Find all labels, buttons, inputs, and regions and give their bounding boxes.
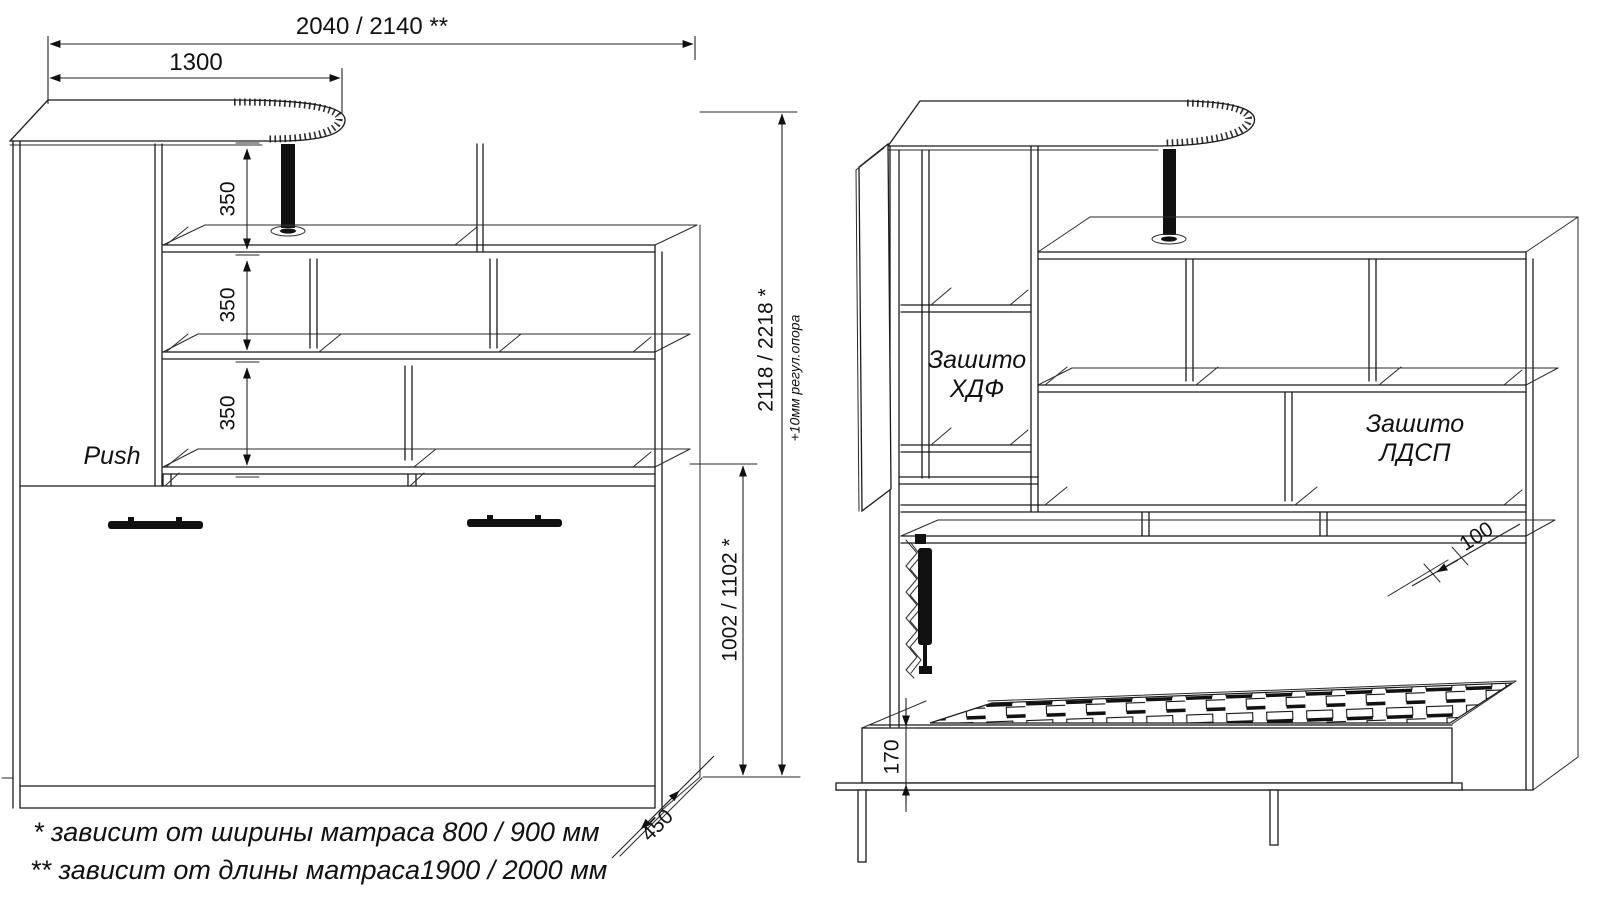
label-back-hdf: Зашито ХДФ [928,346,1026,403]
note-adjustable-support: +10мм регул.опора [787,314,803,441]
shelf-dividers [163,227,651,486]
dim-shelf-spacing-3: 350 [217,395,240,430]
dimension-shelf-spacing: 350 350 350 [217,143,259,477]
dim-depth-450: 450 [637,805,678,846]
label-back-ldsp: Зашито ЛДСП [1366,410,1464,467]
left-figure-wall-bed-closed: 2040 / 2140 ** 1300 [2,13,803,858]
push-label: Push [84,442,141,470]
footnote-mattress-length: ** зависит от длины матраса1900 / 2000 м… [30,855,607,885]
label-back-ldsp-line1: Зашито [1366,410,1464,438]
desk-top [10,100,345,145]
desk-top-open-view [888,101,1255,150]
dim-shelf-depth-100: 100 [1456,517,1498,555]
dim-bed-panel-height: 1002 / 1102 * [719,538,742,661]
dim-shelf-spacing-1: 350 [217,181,240,216]
dim-overall-width: 2040 / 2140 ** [296,13,448,40]
dimension-desktop-width: 1300 [50,49,342,114]
bed-slats [930,683,1512,723]
bed-frame-front [862,728,1452,783]
bed-front-panel [20,486,655,808]
label-back-hdf-line2: ХДФ [949,375,1004,403]
right-figure-wall-bed-open: Зашито ХДФ Зашито ЛДСП [836,101,1578,862]
dimension-shelf-depth: 100 [1388,517,1520,596]
label-back-ldsp-line2: ЛДСП [1378,439,1452,467]
dim-shelf-spacing-2: 350 [217,287,240,322]
bed-leg-left [858,790,866,862]
label-back-hdf-line1: Зашито [928,346,1026,374]
open-door [856,144,891,511]
shelf-boards [163,225,697,474]
fold-out-bed [836,681,1516,862]
gas-strut [906,534,932,678]
desk-support-post-open [1152,149,1186,244]
dim-desktop-width: 1300 [169,49,222,76]
furniture-technical-drawing: 2040 / 2140 ** 1300 [0,0,1600,898]
dim-bed-frame-height-170: 170 [881,739,904,774]
dimension-overall-width: 2040 / 2140 ** [48,13,695,104]
technical-drawing: 2040 / 2140 ** 1300 [0,0,1600,898]
bed-bottom-rail [836,783,1462,790]
dim-total-height: 2118 / 2218 * [755,288,778,411]
bed-leg-right [1270,790,1278,845]
desk-support-post [271,144,305,236]
dimension-heights: 1002 / 1102 * 2118 / 2218 * +10мм регул.… [690,112,803,777]
footnote-mattress-width: * зависит от ширины матраса 800 / 900 мм [33,817,599,847]
footnotes: * зависит от ширины матраса 800 / 900 мм… [30,817,607,885]
